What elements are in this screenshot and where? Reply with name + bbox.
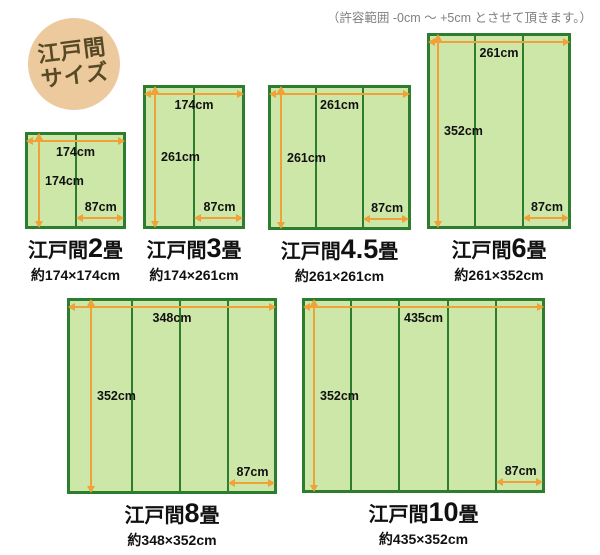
arrowhead-right-icon: [402, 215, 409, 223]
caption-title-prefix: 江戸間: [124, 505, 184, 527]
arrowhead-left-icon: [194, 214, 201, 222]
diagram-caption: 江戸間6畳約261×352cm: [451, 235, 546, 285]
arrowhead-left-icon: [144, 90, 151, 98]
arrowhead-up-icon: [35, 133, 43, 140]
arrowhead-left-icon: [26, 137, 33, 145]
arrowhead-down-icon: [434, 221, 442, 228]
height-dimension-label: 352cm: [444, 124, 483, 138]
height-arrow: [313, 301, 315, 490]
arrowhead-right-icon: [403, 90, 410, 98]
diagram-edoma-3jo: 174cm261cm87cm江戸間3畳約174×261cm: [143, 85, 245, 229]
arrowhead-right-icon: [268, 479, 275, 487]
mat-width-dimension-label: 87cm: [523, 200, 571, 214]
mat-width-dimension-label: 87cm: [76, 200, 127, 214]
caption-title-suffix: 畳: [459, 504, 479, 526]
edoma-size-badge: 江戸間 サイズ: [28, 18, 120, 110]
width-arrow: [28, 140, 123, 142]
arrowhead-up-icon: [434, 34, 442, 41]
arrowhead-right-icon: [536, 478, 543, 486]
caption-title-suffix: 畳: [200, 505, 220, 527]
arrowhead-up-icon: [151, 86, 159, 93]
arrowhead-up-icon: [310, 299, 318, 306]
width-arrow: [305, 306, 542, 308]
width-dimension-label: 435cm: [302, 311, 545, 325]
caption-title-prefix: 江戸間: [281, 241, 341, 263]
caption-title: 江戸間10畳: [368, 499, 478, 526]
diagram-edoma-2jo: 174cm174cm87cm江戸間2畳約174×174cm: [25, 132, 126, 229]
arrowhead-left-icon: [228, 479, 235, 487]
arrowhead-right-icon: [236, 214, 243, 222]
arrowhead-down-icon: [277, 222, 285, 229]
arrowhead-left-icon: [269, 90, 276, 98]
height-dimension-label: 352cm: [97, 389, 136, 403]
arrowhead-left-icon: [496, 478, 503, 486]
diagram-edoma-8jo: 348cm352cm87cm江戸間8畳約348×352cm: [67, 298, 277, 494]
arrowhead-up-icon: [277, 86, 285, 93]
caption-title-prefix: 江戸間: [146, 240, 206, 262]
width-dimension-label: 174cm: [143, 98, 245, 112]
caption-title-number: 3: [206, 233, 221, 263]
caption-title-prefix: 江戸間: [451, 240, 511, 262]
diagram-caption: 江戸間8畳約348×352cm: [124, 500, 219, 550]
edoma-size-chart: 江戸間 サイズ （許容範囲 -0cm ～ +5cm とさせて頂きます。） 174…: [0, 0, 600, 555]
mat-width-arrow: [498, 481, 541, 483]
height-arrow: [90, 301, 92, 491]
strip-divider: [522, 35, 524, 227]
arrowhead-down-icon: [151, 221, 159, 228]
caption-subtitle: 約435×352cm: [368, 529, 478, 549]
caption-title-number: 4.5: [341, 234, 379, 264]
caption-title: 江戸間8畳: [124, 500, 219, 527]
arrowhead-right-icon: [117, 214, 124, 222]
arrowhead-right-icon: [118, 137, 125, 145]
caption-subtitle: 約261×261cm: [281, 266, 399, 286]
diagram-edoma-10jo: 435cm352cm87cm江戸間10畳約435×352cm: [302, 298, 545, 493]
caption-title-prefix: 江戸間: [368, 504, 428, 526]
caption-title-prefix: 江戸間: [28, 240, 88, 262]
mat-width-arrow: [78, 217, 123, 219]
arrowhead-left-icon: [76, 214, 83, 222]
arrowhead-down-icon: [310, 485, 318, 492]
arrowhead-right-icon: [237, 90, 244, 98]
arrowhead-right-icon: [562, 214, 569, 222]
width-arrow: [430, 41, 568, 43]
mat-width-dimension-label: 87cm: [496, 464, 545, 478]
caption-title-number: 6: [511, 233, 526, 263]
arrowhead-down-icon: [87, 486, 95, 493]
strip-divider: [398, 300, 400, 491]
width-dimension-label: 261cm: [427, 46, 571, 60]
caption-title-number: 10: [428, 497, 458, 527]
arrowhead-right-icon: [537, 303, 544, 311]
arrowhead-down-icon: [35, 221, 43, 228]
caption-title-number: 2: [88, 233, 103, 263]
mat-width-dimension-label: 87cm: [194, 200, 245, 214]
caption-title-suffix: 畳: [222, 240, 242, 262]
diagram-caption: 江戸間2畳約174×174cm: [28, 235, 123, 285]
strip-divider: [495, 300, 497, 491]
strip-divider: [179, 300, 181, 492]
mat-width-arrow: [365, 218, 407, 220]
diagram-caption: 江戸間4.5畳約261×261cm: [281, 236, 399, 286]
width-dimension-label: 261cm: [268, 98, 411, 112]
caption-subtitle: 約174×261cm: [146, 265, 241, 285]
strip-divider: [447, 300, 449, 491]
height-dimension-label: 174cm: [45, 174, 84, 188]
arrowhead-right-icon: [563, 38, 570, 46]
mat-width-arrow: [525, 217, 567, 219]
caption-title-suffix: 畳: [378, 241, 398, 263]
diagram-caption: 江戸間10畳約435×352cm: [368, 499, 478, 549]
caption-title-suffix: 畳: [103, 240, 123, 262]
arrowhead-left-icon: [523, 214, 530, 222]
caption-title: 江戸間6畳: [451, 235, 546, 262]
height-dimension-label: 261cm: [287, 151, 326, 165]
width-dimension-label: 348cm: [67, 311, 277, 325]
diagram-edoma-6jo: 261cm352cm87cm江戸間6畳約261×352cm: [427, 33, 571, 229]
width-dimension-label: 174cm: [25, 145, 126, 159]
width-arrow: [271, 93, 408, 95]
tolerance-note: （許容範囲 -0cm ～ +5cm とさせて頂きます。）: [327, 7, 592, 26]
width-arrow: [70, 306, 274, 308]
mat-width-arrow: [230, 482, 273, 484]
height-arrow: [437, 36, 439, 226]
caption-subtitle: 約261×352cm: [451, 265, 546, 285]
arrowhead-left-icon: [68, 303, 75, 311]
arrowhead-right-icon: [269, 303, 276, 311]
caption-title: 江戸間4.5畳: [281, 236, 399, 263]
caption-title-number: 8: [184, 498, 199, 528]
diagram-edoma-4-5jo: 261cm261cm87cm江戸間4.5畳約261×261cm: [268, 85, 411, 230]
arrowhead-left-icon: [363, 215, 370, 223]
caption-subtitle: 約348×352cm: [124, 530, 219, 550]
arrowhead-up-icon: [87, 299, 95, 306]
caption-title-suffix: 畳: [527, 240, 547, 262]
caption-subtitle: 約174×174cm: [28, 265, 123, 285]
mat-width-arrow: [196, 217, 241, 219]
caption-title: 江戸間3畳: [146, 235, 241, 262]
diagram-caption: 江戸間3畳約174×261cm: [146, 235, 241, 285]
height-dimension-label: 261cm: [161, 150, 200, 164]
mat-width-dimension-label: 87cm: [228, 465, 277, 479]
badge-text: 江戸間 サイズ: [37, 35, 112, 92]
arrowhead-left-icon: [303, 303, 310, 311]
strip-divider: [227, 300, 229, 492]
caption-title: 江戸間2畳: [28, 235, 123, 262]
width-arrow: [146, 93, 242, 95]
mat-width-dimension-label: 87cm: [363, 201, 411, 215]
height-dimension-label: 352cm: [320, 389, 359, 403]
